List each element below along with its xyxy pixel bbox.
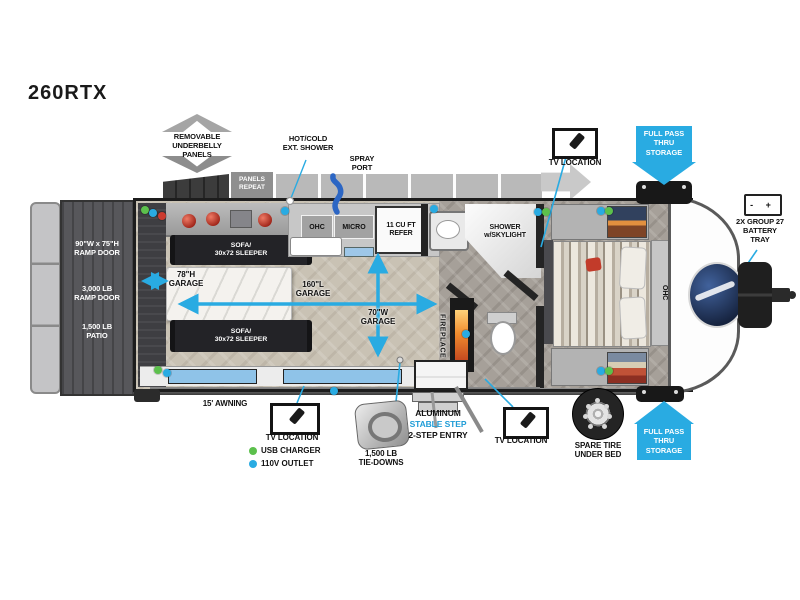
- sidewall-panel-band: [276, 174, 542, 198]
- usb-dot: [605, 367, 613, 375]
- garage-length-label: 160"L GARAGE: [281, 280, 345, 299]
- spare-tire-icon: [572, 388, 624, 440]
- ramp-size-label: 90"W x 75"H RAMP DOOR: [62, 240, 132, 258]
- tie-down-label: 1,500 LB TIE-DOWNS: [349, 449, 413, 468]
- bed-pillow: [619, 246, 647, 289]
- outlet-dot: [149, 209, 157, 217]
- ext-shower-label: HOT/COLD EXT. SHOWER: [270, 135, 346, 153]
- tv-location-label-top: TV LOCATION: [535, 158, 615, 167]
- floorplan-diagram: 260RTX PANELS REPEAT REMOVABLE UNDERBELL…: [0, 0, 800, 600]
- ramp-capacity-label: 3,000 LB RAMP DOOR: [62, 285, 132, 303]
- spray-port-label: SPRAY PORT: [331, 155, 393, 173]
- legend-usb-label: USB CHARGER: [261, 446, 321, 455]
- sofa-sleeper-bottom: SOFA/ 30x72 SLEEPER: [170, 320, 312, 352]
- battery-icon: - +: [744, 194, 782, 216]
- refrigerator: 11 CU FT REFER: [375, 206, 427, 254]
- usb-dot: [542, 208, 550, 216]
- bed-headboard: [544, 240, 553, 344]
- step-label-2: STABLE STEP: [395, 419, 481, 429]
- outlet-dot: [330, 387, 338, 395]
- patio-rails: [30, 202, 61, 394]
- fireplace-label: FIREPLACE: [435, 300, 448, 372]
- outlet-dot-icon: [249, 460, 257, 468]
- window-strip: [283, 369, 402, 384]
- underbelly-arrow-up-icon: [162, 114, 232, 132]
- fuel-can-icon: [206, 212, 220, 226]
- full-pass-thru-arrow-bottom: FULL PASS THRU STORAGE: [637, 424, 691, 460]
- garage-height-label: 78"H GARAGE: [163, 270, 209, 289]
- full-pass-thru-arrow-top: FULL PASS THRU STORAGE: [636, 126, 692, 162]
- tv-icon-bottom-left: [270, 403, 320, 435]
- fuel-can-icon: [182, 214, 196, 228]
- rear-bumper: [134, 389, 160, 402]
- window-strip: [168, 369, 257, 384]
- outlet-dot: [534, 208, 542, 216]
- underbelly-panel-strip: [163, 174, 229, 200]
- counter-drawer: [344, 247, 374, 257]
- outlet-dot: [281, 207, 289, 215]
- fuel-can-icon: [258, 213, 272, 227]
- bath-bed-wall-bottom: [536, 306, 544, 388]
- usb-dot: [605, 207, 613, 215]
- tv-icon-top: [552, 128, 598, 159]
- garage-rear-strip: [138, 203, 166, 387]
- step-label-1: ALUMINUM: [395, 408, 481, 418]
- kitchen-bath-wall: [421, 204, 428, 256]
- entry-steps: [412, 392, 464, 402]
- usb-dot: [154, 366, 162, 374]
- ramp-patio-label: 1,500 LB PATIO: [62, 323, 132, 341]
- wardrobe-tv-panel: [607, 352, 647, 384]
- toilet: [490, 321, 516, 355]
- tv-location-label-bottom-left: TV LOCATION: [252, 433, 332, 442]
- outlet-dot: [597, 367, 605, 375]
- usb-dot: [141, 206, 149, 214]
- bed-accent: [585, 257, 602, 272]
- legend-outlet: 110V OUTLET: [249, 459, 313, 468]
- tv-location-label-bottom-center: TV LOCATION: [481, 436, 561, 445]
- sofa-label: SOFA/ 30x72 SLEEPER: [215, 328, 268, 344]
- legend-outlet-label: 110V OUTLET: [261, 459, 313, 468]
- storage-door-bottom: [636, 386, 684, 402]
- battery-label: 2X GROUP 27 BATTERY TRAY: [722, 218, 798, 245]
- outlet-dot: [430, 205, 438, 213]
- underbelly-panels-label: REMOVABLE UNDERBELLY PANELS: [152, 133, 242, 160]
- garage-width-label: 70"W GARAGE: [347, 308, 409, 327]
- step-label-3: 2-STEP ENTRY: [395, 430, 481, 440]
- gear-box: [230, 210, 252, 228]
- tv-icon-bottom-center: [503, 407, 549, 439]
- ohc-cabinet: OHC: [301, 215, 333, 239]
- legend-usb: USB CHARGER: [249, 446, 321, 455]
- microwave: MICRO: [334, 215, 374, 239]
- awning-label: 15' AWNING: [185, 399, 265, 408]
- awning-rail: [150, 387, 540, 395]
- outlet-dot: [462, 330, 470, 338]
- kitchen-sink: [290, 237, 342, 256]
- marker-dot: [158, 212, 166, 220]
- panels-repeat-label: PANELS REPEAT: [231, 172, 273, 198]
- sofa-label: SOFA/ 30x72 SLEEPER: [215, 242, 268, 258]
- bath-sink-bowl: [436, 220, 460, 239]
- outlet-dot: [163, 369, 171, 377]
- page-title: 260RTX: [28, 82, 107, 105]
- shower-label: SHOWER w/SKYLIGHT: [470, 224, 540, 241]
- band-arrow-icon: [541, 164, 591, 200]
- usb-dot-icon: [249, 447, 257, 455]
- wardrobe-tv-panel: [607, 206, 647, 238]
- outlet-dot: [597, 207, 605, 215]
- propane-cover: [738, 262, 772, 328]
- bed-pillow: [619, 296, 647, 339]
- spare-tire-label: SPARE TIRE UNDER BED: [558, 441, 638, 460]
- hitch-tip: [788, 291, 796, 299]
